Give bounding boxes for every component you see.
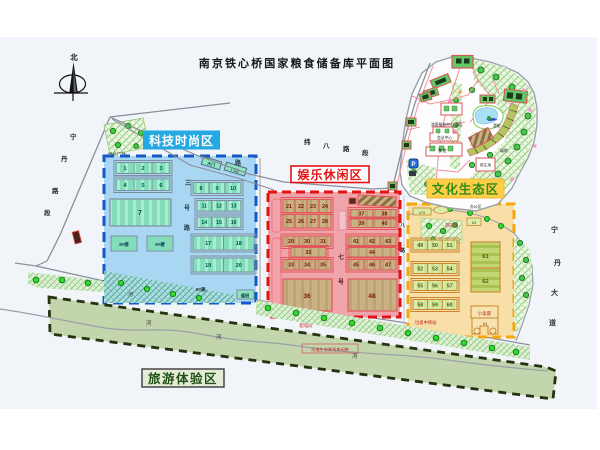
svg-text:26: 26: [298, 219, 304, 225]
svg-text:旅游体验区: 旅游体验区: [147, 371, 218, 386]
svg-text:30: 30: [304, 239, 310, 245]
svg-text:河: 河: [216, 333, 222, 341]
svg-text:58: 58: [417, 302, 423, 308]
svg-text:39: 39: [359, 221, 365, 227]
svg-text:垃圾中转站: 垃圾中转站: [415, 319, 437, 326]
svg-text:23: 23: [310, 204, 316, 210]
svg-text:路: 路: [52, 186, 59, 195]
svg-text:大: 大: [551, 288, 558, 297]
svg-text:12: 12: [216, 204, 222, 210]
svg-text:20: 20: [236, 263, 242, 269]
svg-text:13: 13: [231, 204, 237, 210]
svg-text:56: 56: [432, 283, 438, 289]
svg-text:43: 43: [385, 239, 391, 245]
svg-text:44: 44: [369, 250, 375, 256]
svg-text:文化生态区: 文化生态区: [432, 182, 500, 197]
svg-text:号: 号: [184, 204, 190, 212]
svg-text:18: 18: [236, 241, 242, 247]
svg-text:9#楼: 9#楼: [155, 241, 165, 248]
svg-text:绿地: 绿地: [500, 148, 508, 153]
svg-text:60: 60: [447, 302, 453, 308]
svg-text:5#路: 5#路: [196, 286, 206, 293]
svg-text:道: 道: [549, 318, 556, 327]
svg-text:段: 段: [362, 148, 369, 157]
svg-text:16: 16: [231, 220, 237, 226]
svg-text:宁: 宁: [70, 132, 77, 141]
svg-text:游船: 游船: [493, 123, 501, 128]
svg-text:纬: 纬: [304, 137, 311, 146]
svg-text:25: 25: [286, 219, 292, 225]
svg-text:小卖部: 小卖部: [478, 310, 492, 317]
svg-text:61: 61: [482, 254, 489, 260]
svg-text:35: 35: [320, 263, 326, 269]
svg-text:10: 10: [230, 186, 236, 192]
svg-text:51: 51: [447, 243, 453, 249]
svg-text:50: 50: [432, 243, 438, 249]
svg-text:9: 9: [215, 186, 218, 192]
svg-text:路: 路: [235, 159, 242, 167]
svg-text:27: 27: [310, 219, 316, 225]
svg-text:号: 号: [338, 278, 344, 286]
svg-text:29: 29: [288, 239, 294, 245]
svg-text:28: 28: [322, 219, 328, 225]
svg-text:八: 八: [322, 142, 330, 150]
svg-text:22: 22: [298, 204, 304, 210]
svg-text:47: 47: [385, 263, 391, 269]
svg-text:14: 14: [201, 220, 207, 226]
svg-text:64: 64: [483, 321, 488, 326]
svg-text:31: 31: [320, 239, 326, 245]
svg-text:宁: 宁: [551, 225, 558, 234]
svg-text:P: P: [411, 162, 415, 168]
svg-text:科技时尚区: 科技时尚区: [149, 133, 214, 148]
svg-text:2: 2: [141, 166, 144, 172]
svg-text:三: 三: [185, 180, 191, 187]
svg-text:路: 路: [343, 144, 350, 153]
svg-text:8#楼: 8#楼: [119, 241, 129, 248]
svg-text:40: 40: [382, 221, 388, 227]
svg-text:17: 17: [205, 241, 211, 247]
svg-text:段: 段: [44, 208, 51, 217]
svg-text:63: 63: [472, 220, 477, 225]
svg-text:食 堂: 食 堂: [438, 148, 447, 153]
svg-text:游乐场: 游乐场: [445, 222, 459, 229]
svg-text:49: 49: [417, 243, 423, 249]
svg-text:11: 11: [202, 204, 208, 210]
svg-text:娱乐休闲区: 娱乐休闲区: [297, 167, 362, 182]
svg-text:62: 62: [482, 279, 488, 285]
svg-text:34: 34: [304, 263, 310, 269]
svg-text:办公区: 办公区: [470, 204, 482, 209]
svg-text:48: 48: [368, 293, 376, 300]
svg-text:42: 42: [369, 239, 375, 245]
svg-text:河: 河: [146, 319, 152, 327]
svg-text:丹: 丹: [60, 155, 68, 163]
svg-text:21: 21: [286, 204, 292, 210]
svg-text:41: 41: [353, 239, 359, 245]
svg-text:8: 8: [199, 186, 202, 192]
svg-text:15: 15: [216, 220, 222, 226]
svg-text:七: 七: [338, 253, 344, 261]
svg-text:7: 7: [138, 210, 142, 217]
svg-text:河道生态景观休闲带: 河道生态景观休闲带: [311, 346, 349, 353]
svg-text:59: 59: [432, 302, 438, 308]
svg-text:55: 55: [417, 283, 423, 289]
svg-text:36: 36: [303, 293, 311, 300]
svg-text:停车场: 停车场: [480, 163, 492, 168]
svg-text:57: 57: [447, 283, 453, 289]
svg-text:33: 33: [288, 263, 294, 269]
svg-text:游客服务中心·酒店: 游客服务中心·酒店: [431, 122, 463, 127]
svg-text:路: 路: [184, 224, 191, 232]
svg-text:54: 54: [447, 266, 453, 272]
svg-text:47#: 47#: [419, 210, 426, 215]
svg-text:值班: 值班: [241, 292, 250, 299]
svg-text:北: 北: [70, 52, 78, 62]
svg-text:会议中心: 会议中心: [437, 135, 452, 140]
svg-text:河: 河: [128, 291, 133, 298]
svg-text:52: 52: [417, 266, 423, 272]
svg-text:19: 19: [205, 263, 211, 269]
svg-text:24: 24: [322, 204, 328, 210]
svg-text:丹: 丹: [553, 259, 561, 267]
svg-text:46: 46: [369, 263, 375, 269]
svg-text:南京铁心桥国家粮食储备库平面图: 南京铁心桥国家粮食储备库平面图: [199, 56, 396, 70]
svg-text:45: 45: [353, 263, 359, 269]
svg-text:32: 32: [306, 250, 312, 256]
svg-text:53: 53: [432, 266, 438, 272]
